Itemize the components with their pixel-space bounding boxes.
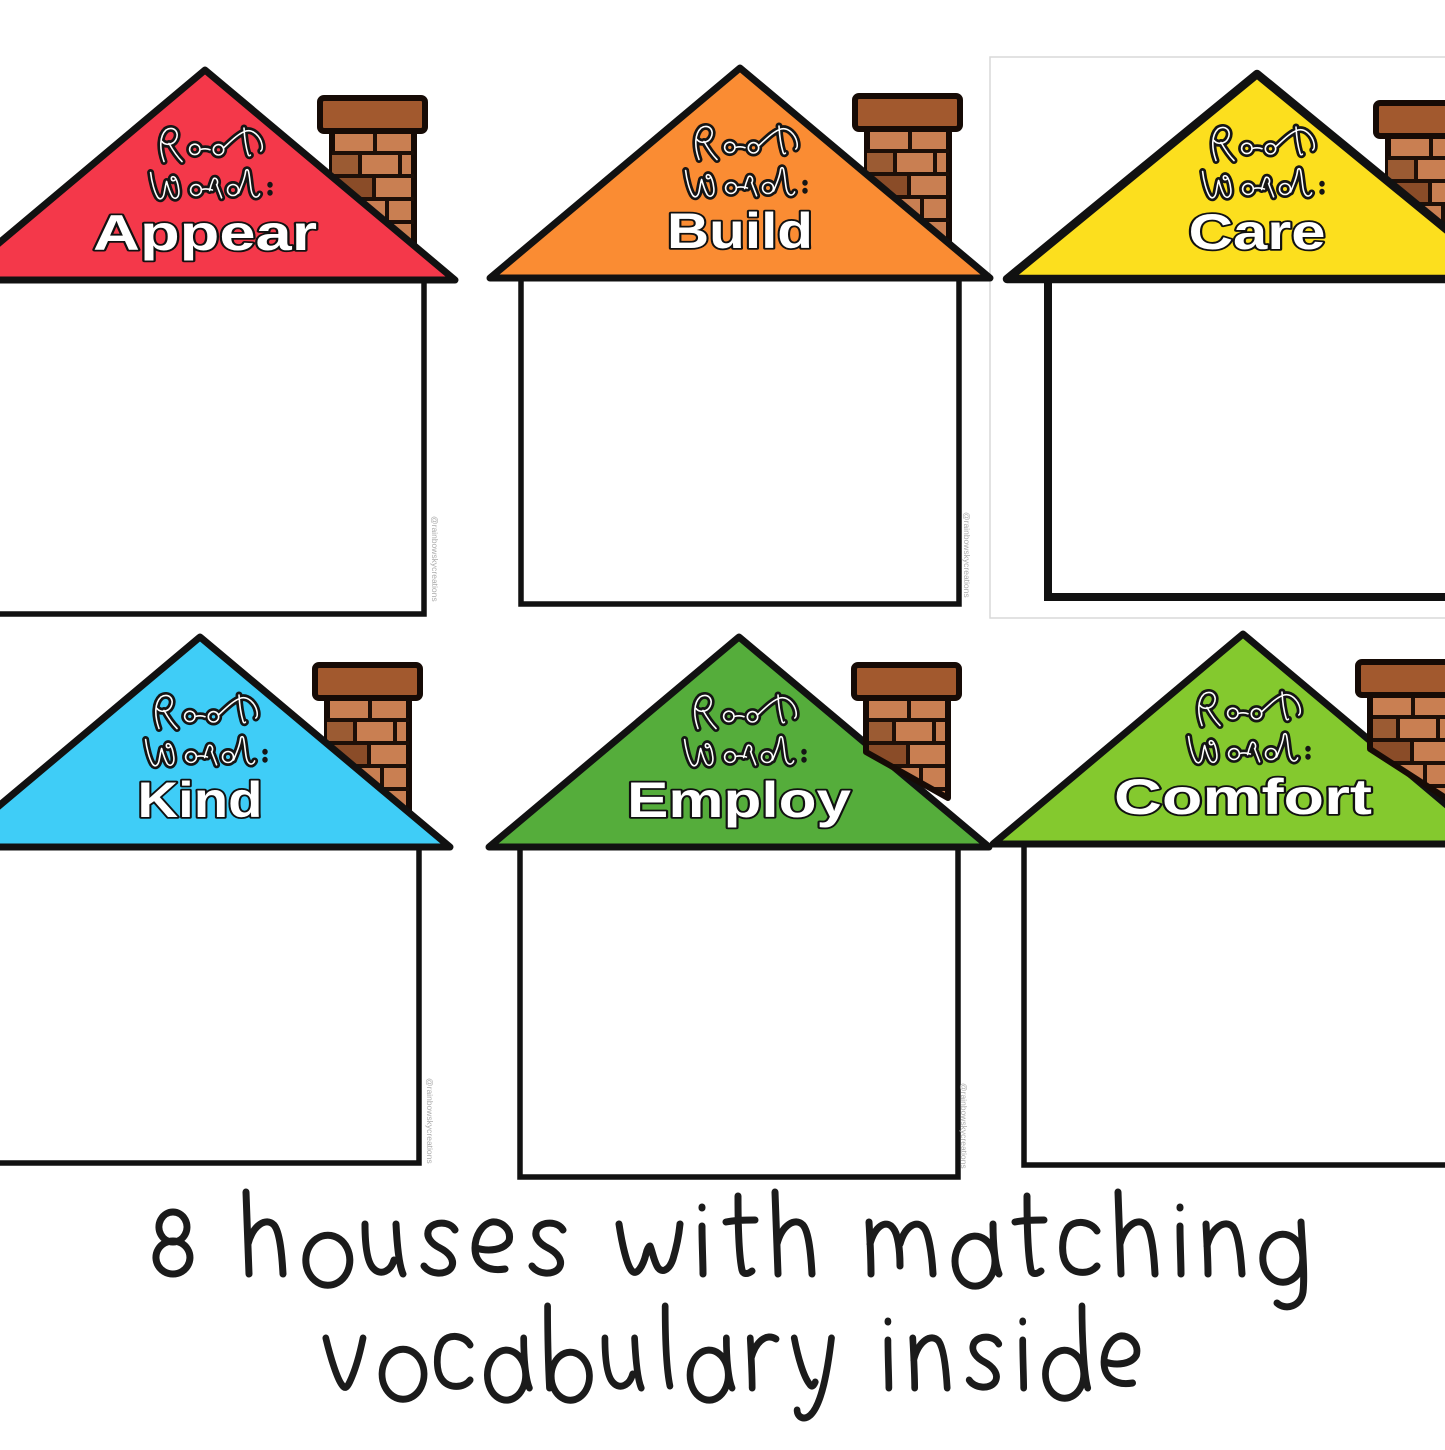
svg-text:Care: Care xyxy=(1189,204,1326,260)
svg-text:Comfort: Comfort xyxy=(1114,769,1372,825)
svg-text:@rainbowskycreations: @rainbowskycreations xyxy=(425,1078,435,1164)
svg-text:Build: Build xyxy=(667,203,813,259)
svg-text:@rainbowskycreations: @rainbowskycreations xyxy=(959,1083,969,1169)
svg-text:Kind: Kind xyxy=(138,772,263,828)
svg-text:@rainbowskycreations: @rainbowskycreations xyxy=(962,512,972,598)
svg-text:Appear: Appear xyxy=(93,205,317,261)
svg-text:Employ: Employ xyxy=(627,772,851,828)
svg-text:@rainbowskycreations: @rainbowskycreations xyxy=(430,516,440,602)
